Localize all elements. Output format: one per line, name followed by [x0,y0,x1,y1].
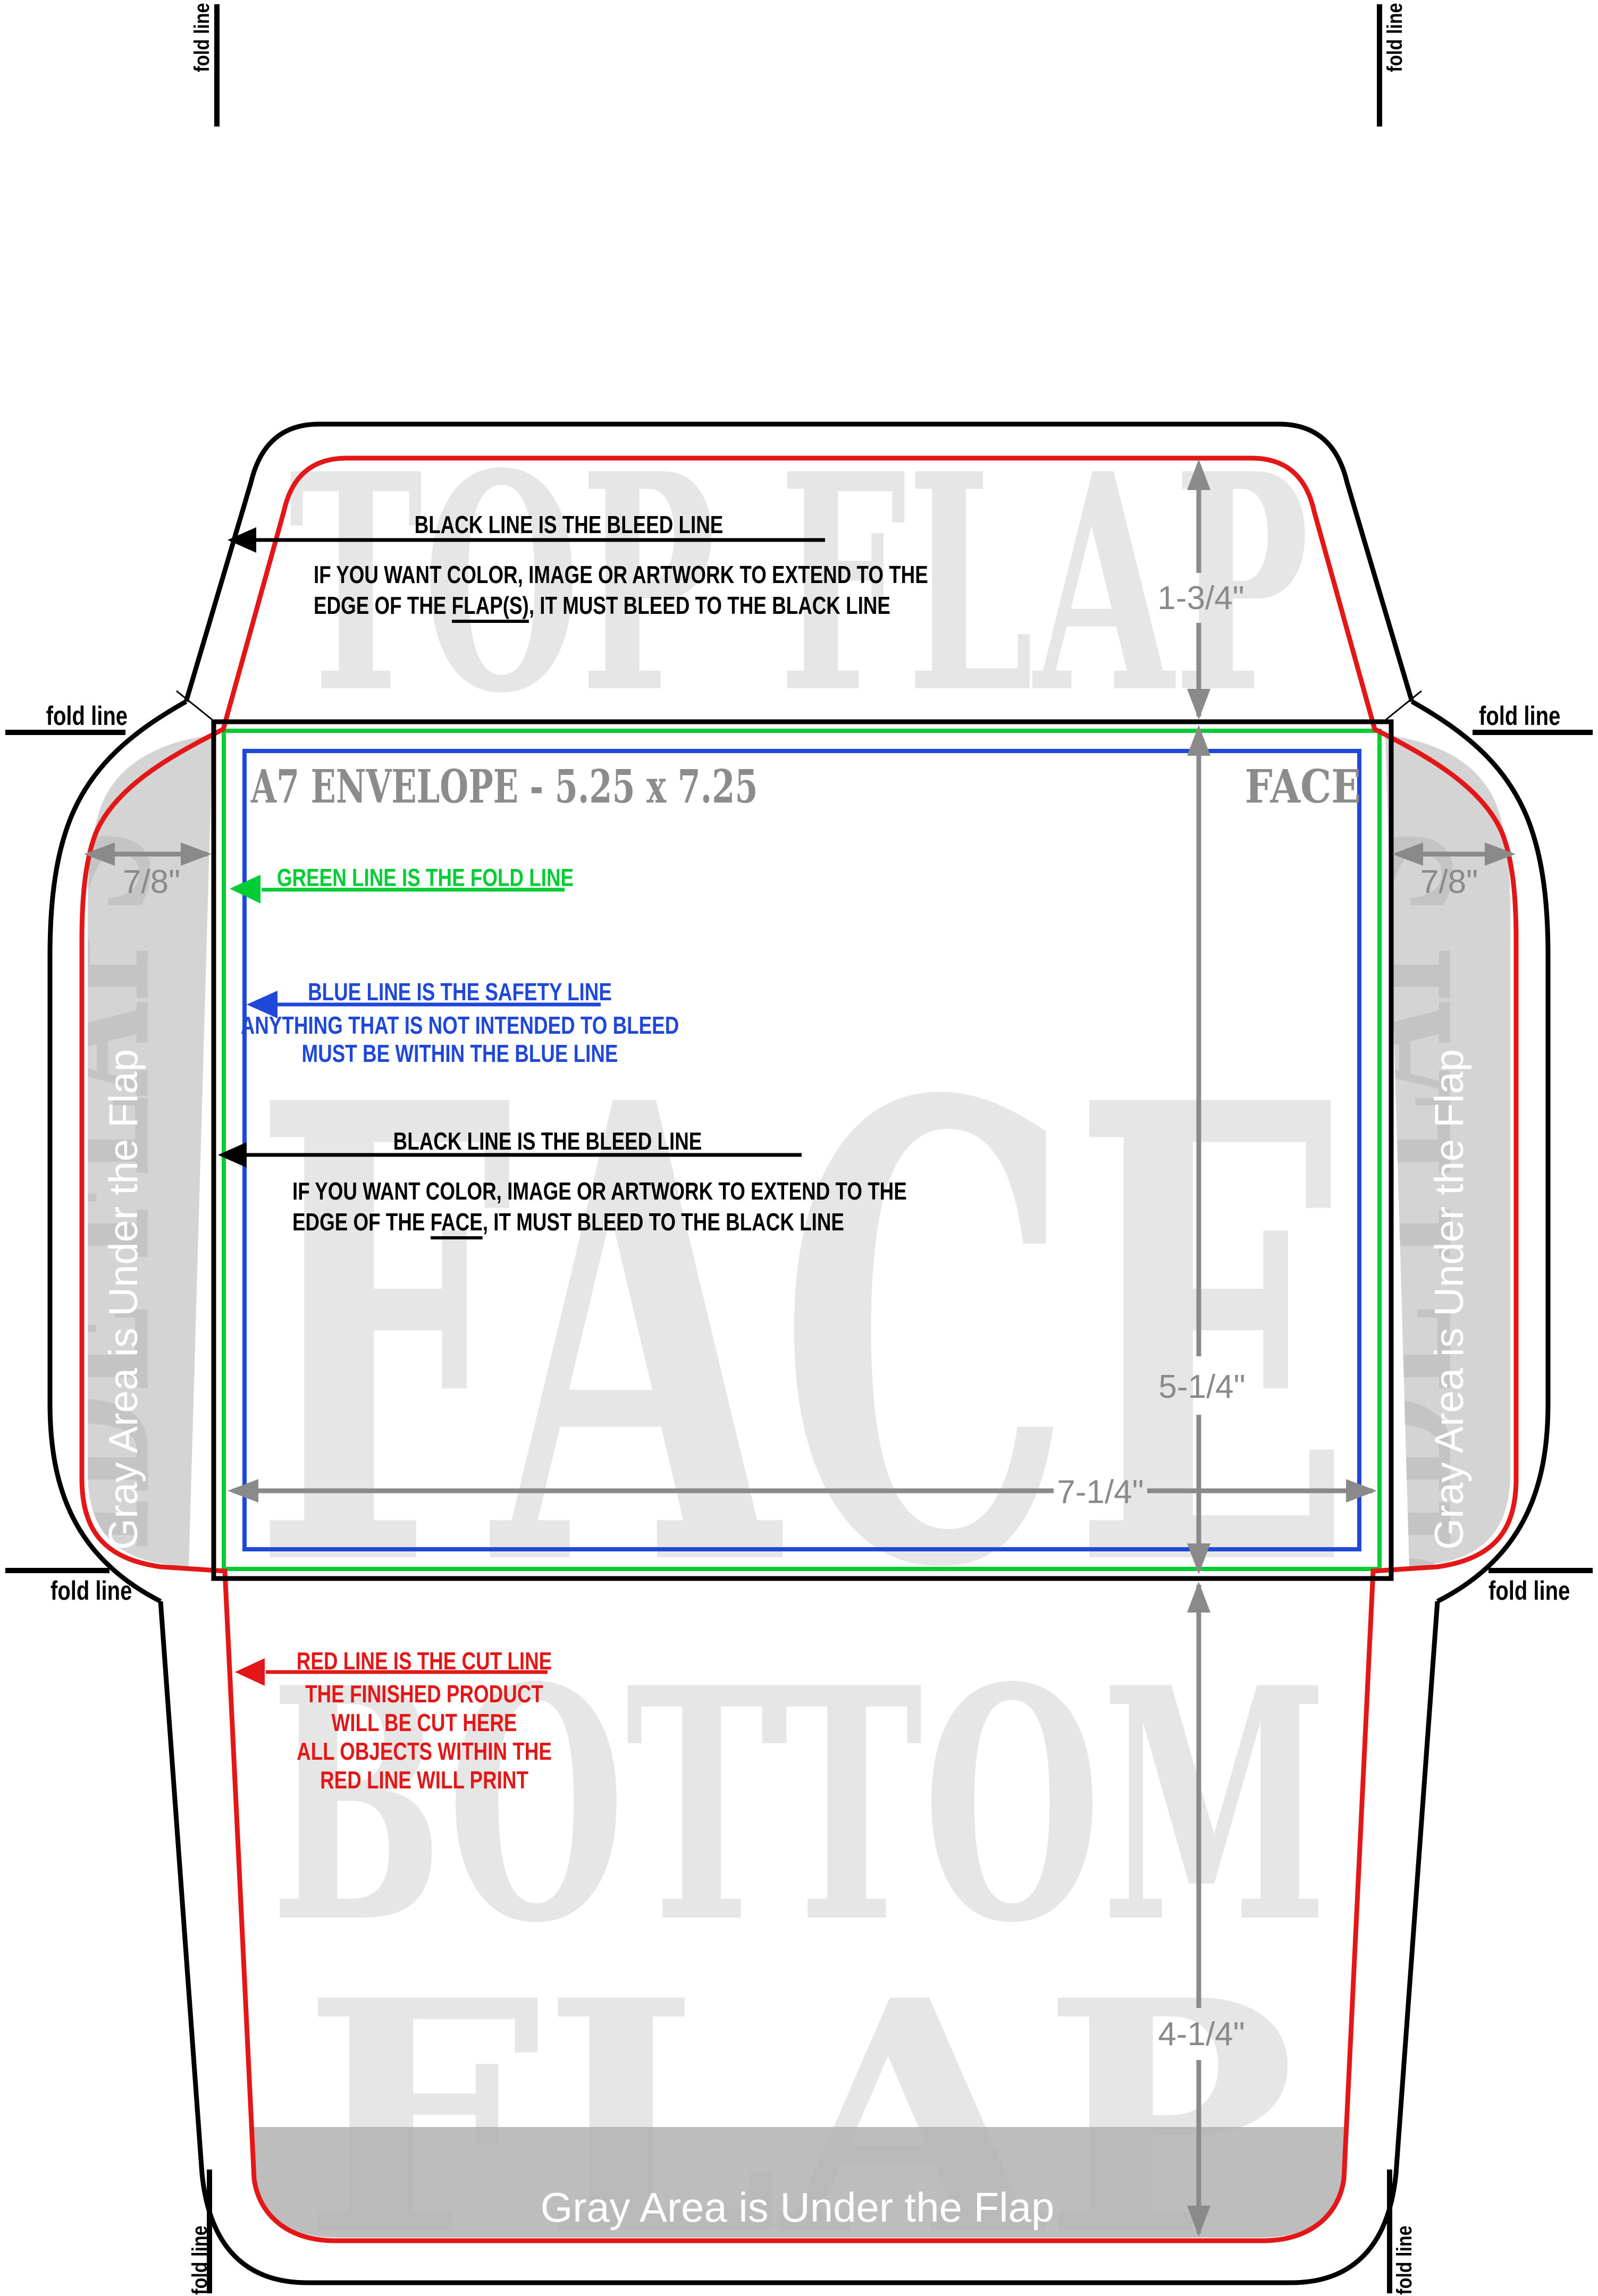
fold-label-side-left-bottom: fold line [51,1575,132,1606]
dim-face-height: 5-1/4" [1158,1369,1245,1405]
flap-bleed-line2: IF YOU WANT COLOR, IMAGE OR ARTWORK TO E… [314,559,824,590]
dim-side-flap-width-right: 7/8" [1420,864,1478,900]
safety-line-annotation: BLUE LINE IS THE SAFETY LINE ANYTHING TH… [205,978,715,1068]
dim-top-flap-height: 1-3/4" [1157,580,1244,617]
cut-line5: RED LINE WILL PRINT [169,1766,679,1794]
fold-label-top-right: fold line [1383,4,1404,72]
flap-bleed-line3-prefix: EDGE OF THE [314,592,452,619]
side-flaps-watermark-left: SIDE FLAPS [0,829,193,1637]
face-area-label: FACE [1189,760,1361,814]
flap-bleed-line3-suffix: , IT MUST BLEED TO THE BLACK LINE [529,592,890,619]
face-bleed-line3-suffix: , IT MUST BLEED TO THE BLACK LINE [483,1208,844,1236]
fold-label-bottom-left: fold line [188,2227,209,2295]
fold-line-annotation: GREEN LINE IS THE FOLD LINE [170,862,680,893]
flap-bleed-annotation: BLACK LINE IS THE BLEED LINE IF YOU WANT… [314,509,824,621]
safety-line1: BLUE LINE IS THE SAFETY LINE [205,978,715,1006]
gray-area-note-bottom: Gray Area is Under the Flap [541,2184,1055,2231]
fold-label-side-left-top: fold line [43,700,128,731]
cut-line2: THE FINISHED PRODUCT [169,1679,679,1708]
envelope-template-page: { "title": { "name": "A7 ENVELOPE - 5.25… [0,0,1598,2296]
fold-label-top-left: fold line [190,4,212,72]
face-bleed-rule-gap [292,1157,803,1176]
cut-line1: RED LINE IS THE CUT LINE [169,1647,679,1675]
fold-label-side-right-bottom: fold line [1488,1575,1570,1606]
cut-line4: ALL OBJECTS WITHIN THE [169,1737,679,1766]
template-title: A7 ENVELOPE - 5.25 x 7.25 [251,760,758,814]
safety-line3: MUST BE WITHIN THE BLUE LINE [205,1040,715,1068]
dim-face-width: 7-1/4" [1057,1474,1143,1510]
fold-label-side-right-top: fold line [1479,700,1560,731]
flap-bleed-line3-underline: FLAP(S) [452,592,529,623]
cut-line3: WILL BE CUT HERE [169,1708,679,1737]
flap-bleed-line3: EDGE OF THE FLAP(S), IT MUST BLEED TO TH… [314,590,824,621]
gray-area-note-left: Gray Area is Under the Flap [101,1049,146,1550]
face-bleed-line3: EDGE OF THE FACE, IT MUST BLEED TO THE B… [292,1206,803,1237]
flap-bleed-line1: BLACK LINE IS THE BLEED LINE [314,509,824,540]
face-bleed-annotation: BLACK LINE IS THE BLEED LINE IF YOU WANT… [292,1126,803,1237]
face-bleed-line3-underline: FACE [431,1208,483,1239]
dim-bottom-flap-height: 4-1/4" [1158,2016,1244,2053]
cut-line-annotation: RED LINE IS THE CUT LINE THE FINISHED PR… [169,1647,679,1794]
safety-line2: ANYTHING THAT IS NOT INTENDED TO BLEED [205,1011,715,1040]
flap-bleed-rule-gap [314,540,824,559]
face-bleed-line2: IF YOU WANT COLOR, IMAGE OR ARTWORK TO E… [292,1176,803,1206]
fold-line-annotation-text: GREEN LINE IS THE FOLD LINE [170,862,680,893]
face-bleed-line3-prefix: EDGE OF THE [292,1208,431,1236]
face-watermark: FACE [253,969,1353,1706]
face-bleed-line1: BLACK LINE IS THE BLEED LINE [292,1126,803,1157]
fold-label-bottom-right: fold line [1393,2227,1414,2295]
gray-area-note-right: Gray Area is Under the Flap [1427,1049,1472,1550]
